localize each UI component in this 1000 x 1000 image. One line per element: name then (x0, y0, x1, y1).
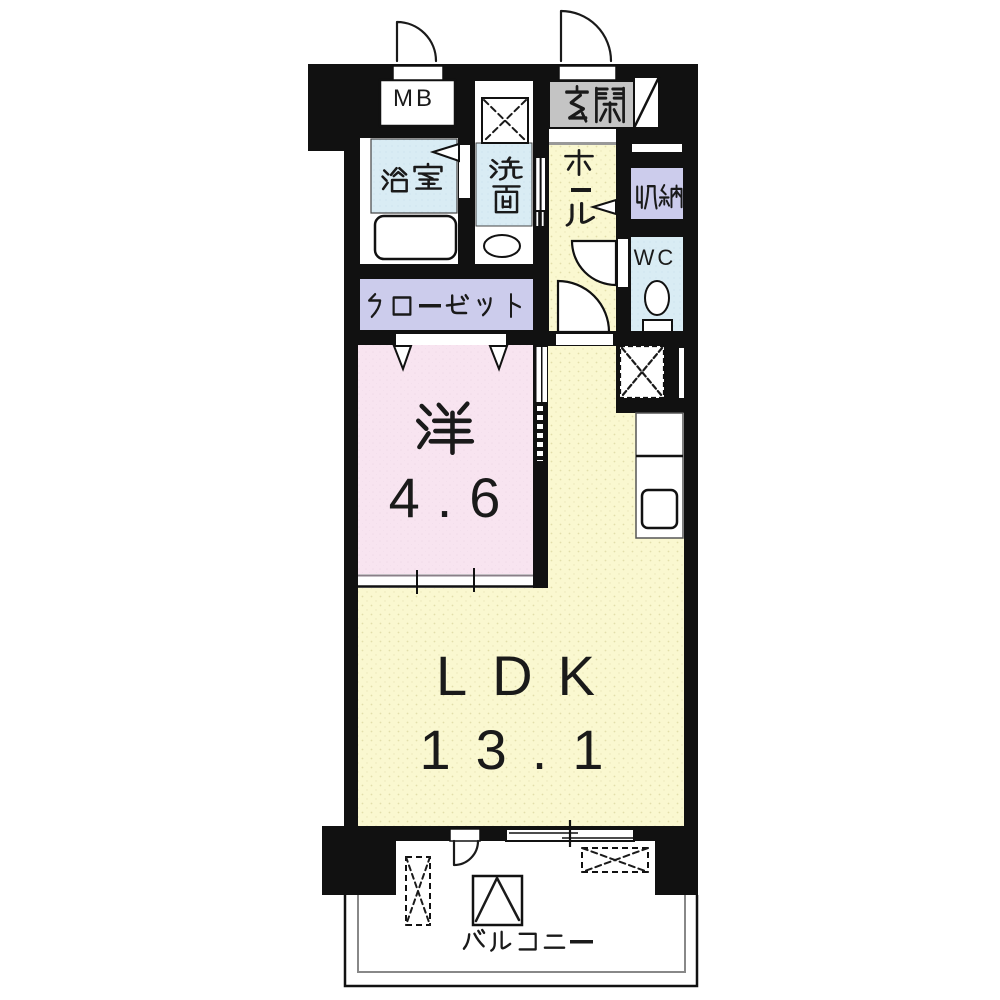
svg-text:LDK: LDK (436, 644, 620, 707)
svg-text:WC: WC (634, 245, 677, 270)
svg-text:4.6: 4.6 (389, 466, 518, 529)
svg-text:MB: MB (393, 85, 435, 112)
svg-text:13.1: 13.1 (420, 718, 629, 781)
